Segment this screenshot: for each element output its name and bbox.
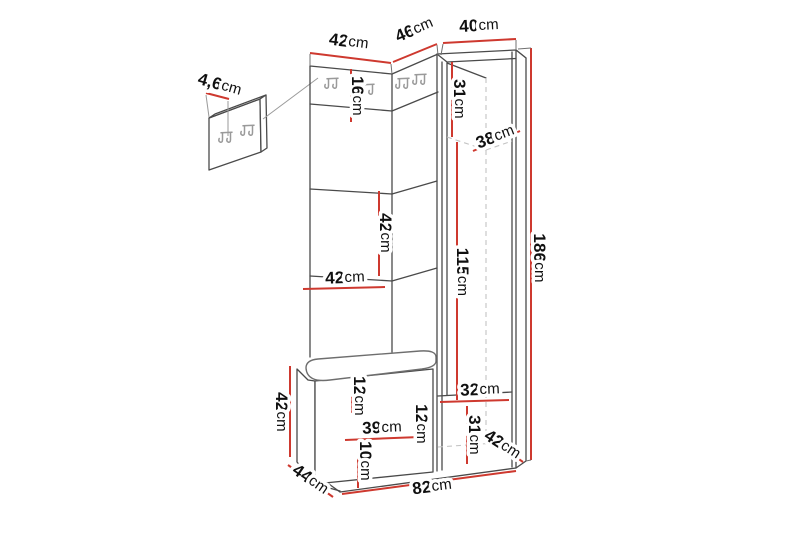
- dim-label-top-width-right: 40cm: [459, 14, 500, 35]
- hook-panel-side-edge: [260, 95, 267, 152]
- furniture-dimension-diagram: 4,6cm 42cm 46cm 40cm 16cm 31cm 38cm 42cm…: [0, 0, 800, 533]
- dim-label-shelf-width: 42cm: [325, 267, 365, 287]
- dim-label-open-section-height: 115cm: [454, 248, 473, 296]
- dim-label-total-height: 186cm: [531, 233, 550, 282]
- dim-label-bench-seat-inset: 12cm: [351, 376, 370, 416]
- cabinet-right-side: [516, 50, 526, 468]
- dim-label-cabinet-upper-height: 31cm: [451, 79, 470, 119]
- dim-label-cabinet-lower-height: 31cm: [466, 415, 485, 455]
- dim-label-cabinet-inner-width: 32cm: [460, 379, 500, 399]
- dim-label-bench-base-height: 10cm: [357, 441, 376, 481]
- dim-label-shelf-spacing: 42cm: [377, 213, 396, 253]
- dim-label-hook-strip-height: 16cm: [349, 76, 368, 116]
- dim-label-bench-height: 42cm: [273, 392, 292, 432]
- dim-label-bench-inner-height: 12cm: [413, 404, 432, 444]
- dim-label-bench-inner-width: 39cm: [362, 417, 402, 437]
